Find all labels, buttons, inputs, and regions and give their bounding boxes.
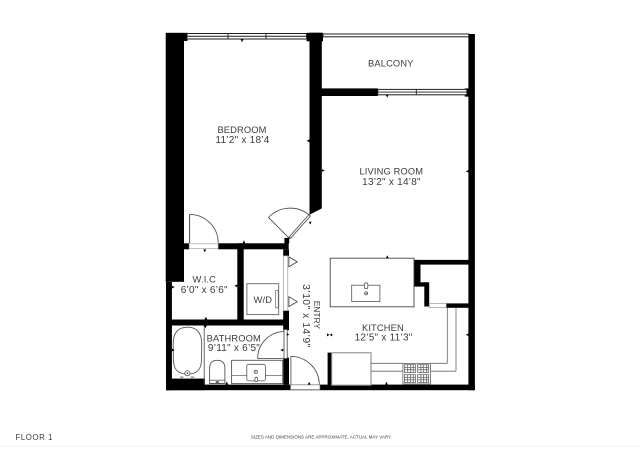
- svg-text:BATHROOM: BATHROOM: [207, 334, 261, 344]
- svg-text:9’11" x 6’5": 9’11" x 6’5": [208, 343, 260, 354]
- svg-text:W.I.C: W.I.C: [193, 275, 217, 285]
- svg-text:BEDROOM: BEDROOM: [217, 125, 266, 135]
- svg-text:11’2" x 18’4: 11’2" x 18’4: [215, 135, 269, 146]
- svg-text:LIVING ROOM: LIVING ROOM: [359, 167, 423, 177]
- svg-text:BALCONY: BALCONY: [368, 59, 413, 69]
- svg-text:13’2" x 14’8": 13’2" x 14’8": [362, 177, 421, 188]
- svg-text:FLOOR 1: FLOOR 1: [16, 433, 54, 442]
- svg-text:6’0" x 6’6": 6’0" x 6’6": [181, 285, 228, 296]
- svg-text:3’10" x 14’9": 3’10" x 14’9": [300, 284, 311, 348]
- svg-text:KITCHEN: KITCHEN: [362, 323, 404, 333]
- svg-text:W/D: W/D: [254, 295, 273, 305]
- svg-text:12’5" x 11’3": 12’5" x 11’3": [355, 333, 413, 344]
- svg-text:ENTRY: ENTRY: [312, 301, 322, 330]
- svg-text:SIZES AND DIMENSIONS ARE APPRO: SIZES AND DIMENSIONS ARE APPROXIMATE, AC…: [251, 435, 392, 440]
